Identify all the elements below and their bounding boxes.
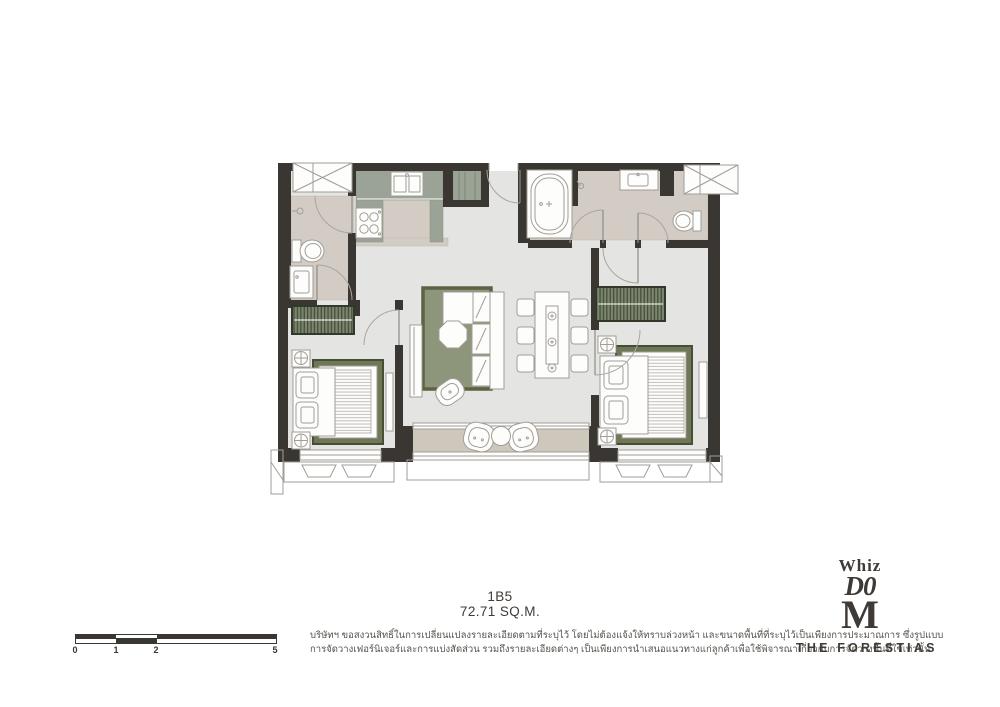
fridge-cabinet [453, 170, 481, 204]
scale-segment [76, 635, 116, 639]
coffee-table-icon [439, 321, 467, 348]
logo-m-text: M [796, 598, 924, 632]
toilet-icon [673, 211, 701, 231]
nightstand-lamp-icon [292, 432, 310, 449]
kitchen-island-floor [383, 198, 430, 242]
balcony-sill [407, 460, 589, 480]
pillow [296, 402, 318, 428]
dining-chair-icon [517, 355, 534, 372]
entrance-opening [489, 163, 518, 171]
dining-chair-icon [571, 327, 588, 344]
pillow [604, 361, 628, 389]
dining-chair-icon [517, 299, 534, 316]
brand-logo: Whiz D0 M THE FORESTIAS [796, 558, 924, 655]
scale-label: 0 [70, 645, 80, 655]
stove-icon [356, 208, 382, 238]
wall-shelf [699, 362, 707, 418]
scale-label: 1 [111, 645, 121, 655]
scale-bar-track [75, 634, 277, 644]
bathtub-icon [531, 174, 568, 234]
kitchen-sink-icon [391, 172, 423, 196]
unit-model: 1B5 [350, 589, 650, 604]
dining-chair-icon [571, 355, 588, 372]
dining-chair-icon [571, 299, 588, 316]
tv-shelf [386, 373, 393, 431]
unit-label: 1B5 72.71 SQ.M. [350, 589, 650, 619]
tv-console [410, 325, 422, 397]
scale-segment [157, 635, 276, 639]
scale-label: 5 [270, 645, 280, 655]
bed-icon [293, 360, 383, 444]
washbasin-icon [620, 170, 658, 190]
shaft-x-box-left [293, 163, 352, 192]
pillow [604, 396, 628, 424]
nightstand-lamp-icon [598, 428, 616, 445]
toilet-icon [292, 240, 324, 262]
scale-segment [116, 638, 157, 643]
balcony-table-icon [492, 427, 511, 446]
shaft-x-box-right [684, 165, 738, 194]
nightstand-lamp-icon [292, 350, 310, 367]
chaise [443, 292, 473, 324]
dining-chair-icon [517, 327, 534, 344]
dining-set [517, 292, 588, 378]
window-sill [284, 462, 394, 482]
scale-label: 2 [151, 645, 161, 655]
pillow [296, 372, 318, 398]
dining-table-icon [535, 292, 569, 378]
scale-bar: 0 1 2 5 [75, 634, 277, 660]
washbasin-icon [290, 266, 313, 298]
floor-plan-page: 1B5 72.71 SQ.M. 0 1 2 5 บริษัทฯ ขอสงวนสิ… [0, 0, 1000, 707]
unit-area: 72.71 SQ.M. [350, 604, 650, 619]
brand-name: THE FORESTIAS [796, 641, 924, 655]
nightstand-lamp-icon [598, 336, 616, 353]
